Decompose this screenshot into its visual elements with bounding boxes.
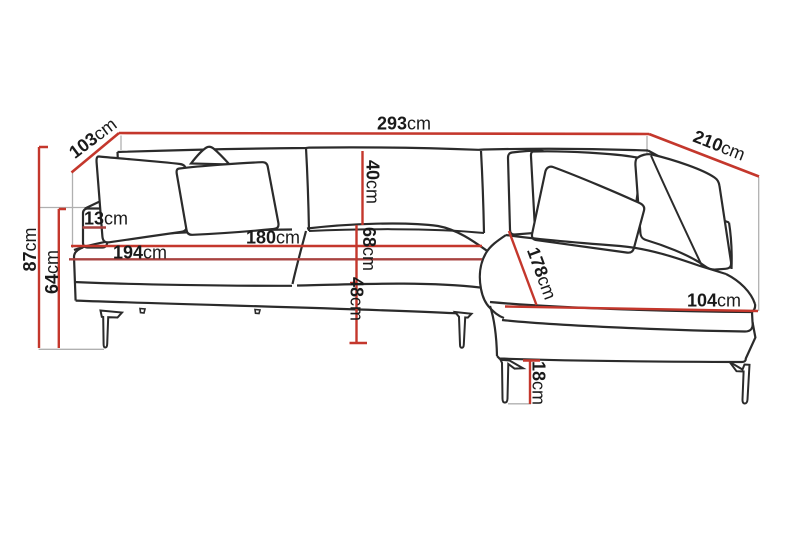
svg-text:68cm: 68cm xyxy=(359,227,379,271)
svg-text:104cm: 104cm xyxy=(687,291,741,311)
svg-text:178cm: 178cm xyxy=(523,245,560,303)
svg-text:87cm: 87cm xyxy=(20,227,40,271)
svg-text:64cm: 64cm xyxy=(42,250,62,294)
svg-text:293cm: 293cm xyxy=(377,114,431,134)
svg-text:18cm: 18cm xyxy=(529,361,549,405)
svg-text:40cm: 40cm xyxy=(363,160,383,204)
svg-text:48cm: 48cm xyxy=(347,277,367,321)
svg-text:194cm: 194cm xyxy=(113,243,167,263)
svg-text:210cm: 210cm xyxy=(690,126,748,164)
svg-text:13cm: 13cm xyxy=(84,209,128,229)
svg-text:180cm: 180cm xyxy=(246,228,300,248)
